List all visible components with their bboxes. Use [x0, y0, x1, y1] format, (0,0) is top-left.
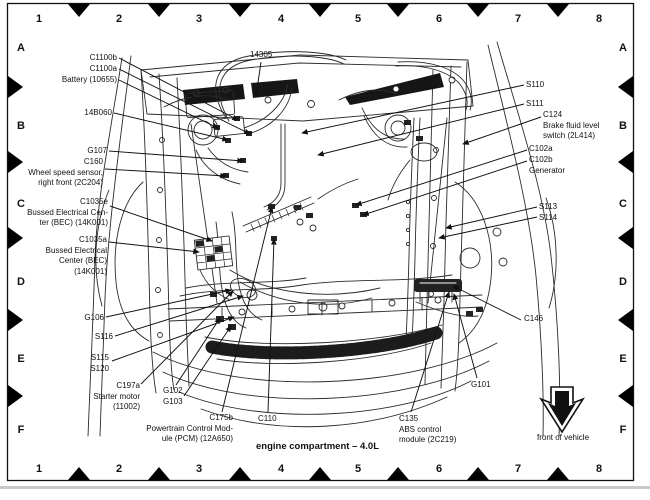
grid-col-8-top: 8	[589, 13, 609, 25]
grid-row-b-left: B	[11, 120, 31, 132]
diagram-title: engine compartment – 4.0L	[256, 441, 379, 452]
callout-text-line: C1100a	[37, 64, 117, 75]
callout-text-line: ule (PCM) (12A650)	[140, 434, 233, 445]
callout-text-line: C1100b	[37, 53, 117, 64]
callout-text-line: (11002)	[58, 402, 140, 413]
callout-s110: S110	[526, 80, 544, 91]
callout-c197a-starter: C197a Starter motor (11002)	[58, 381, 140, 413]
callout-c175b-pcm: C175b Powertrain Control Mod- ule (PCM) …	[140, 413, 233, 445]
callout-c1035e-bec: C1035e Bussed Electrical Cen- ter (BEC) …	[13, 197, 108, 229]
front-of-vehicle-arrow-icon	[541, 387, 583, 432]
callout-text-line: G107	[27, 146, 107, 157]
callout-g102-g103: G102 G103	[163, 386, 183, 407]
callout-c1100b: C1100b	[37, 53, 117, 64]
callout-text-line: C135	[399, 414, 456, 425]
callout-text-line: C102a	[529, 144, 553, 155]
cowl-panel	[141, 55, 473, 121]
callout-text-line: G106	[24, 313, 104, 324]
callout-text-line: S120	[29, 364, 109, 375]
callout-text-line: Generator	[529, 166, 565, 177]
callout-c146: C146	[524, 314, 543, 325]
callout-g106: G106	[24, 313, 104, 324]
callout-text-line: Starter motor	[58, 392, 140, 403]
center-harness	[191, 118, 447, 328]
callout-text-line: C175b	[140, 413, 233, 424]
callout-text-line: right front (2C204)	[8, 178, 103, 189]
callout-battery: Battery (10655)	[37, 75, 117, 86]
engine-compartment-drawing	[88, 42, 560, 436]
service-manual-page: 1 2 3 4 5 6 7 8 1 2 3 4 5 6 7 8 A B C D …	[0, 0, 650, 500]
callout-text-line: Bussed Electrical Cen-	[13, 208, 108, 219]
callout-text-line: C160	[8, 157, 103, 168]
grid-row-d-left: D	[11, 276, 31, 288]
callout-text-line: G103	[163, 397, 183, 408]
front-of-vehicle-label: front of vehicle	[520, 433, 606, 444]
callout-text-line: front of vehicle	[520, 433, 606, 444]
callout-c102b-generator: C102b Generator	[529, 155, 565, 176]
grid-col-6-top: 6	[429, 13, 449, 25]
callout-text-line: C197a	[58, 381, 140, 392]
grid-row-f-left: F	[11, 424, 31, 436]
callout-text-line: Brake fluid level	[543, 121, 599, 132]
callout-text-line: C1035e	[13, 197, 108, 208]
callout-g107: G107	[27, 146, 107, 157]
grid-row-b-right: B	[613, 120, 633, 132]
callout-s111: S111	[526, 99, 544, 110]
callout-g101: G101	[471, 380, 491, 391]
callout-text-line: ter (BEC) (14K001)	[13, 218, 108, 229]
grid-col-7-top: 7	[508, 13, 528, 25]
callout-text-line: module (2C219)	[399, 435, 456, 446]
callout-text-line: C146	[524, 314, 543, 325]
callout-c102a: C102a	[529, 144, 553, 155]
callout-14305: 14305	[250, 50, 272, 61]
callout-text-line: Center (BEC)	[12, 256, 107, 267]
grid-col-8-bottom: 8	[589, 463, 609, 475]
grid-col-5-top: 5	[348, 13, 368, 25]
right-cluster	[362, 108, 437, 342]
callout-c1035a-bec: C1035a Bussed Electrical Center (BEC) (1…	[12, 235, 107, 277]
callout-text-line: S115	[29, 353, 109, 364]
callout-text-line: S110	[526, 80, 544, 91]
grid-row-d-right: D	[613, 276, 633, 288]
callout-text-line: C1035a	[12, 235, 107, 246]
callout-text-line: S114	[539, 213, 557, 224]
grid-row-f-right: F	[613, 424, 633, 436]
callout-text-line: (14K001)	[12, 267, 107, 278]
grid-col-4-top: 4	[271, 13, 291, 25]
grid-row-e-right: E	[613, 353, 633, 365]
page-edge-shadow	[0, 486, 650, 489]
callout-text-line: C110	[258, 414, 277, 425]
grille-bumper	[153, 325, 497, 427]
grid-col-5-bottom: 5	[348, 463, 368, 475]
callout-text-line: S111	[526, 99, 544, 110]
grid-col-1-top: 1	[29, 13, 49, 25]
grid-col-7-bottom: 7	[508, 463, 528, 475]
grid-col-3-bottom: 3	[189, 463, 209, 475]
callout-leader-lines	[105, 58, 541, 412]
callout-c160-wheel-speed-sensor: C160 Wheel speed sensor, right front (2C…	[8, 157, 103, 189]
callout-s116: S116	[33, 332, 113, 343]
callout-c135-abs: C135 ABS control module (2C219)	[399, 414, 456, 446]
grid-col-2-bottom: 2	[109, 463, 129, 475]
grid-row-e-left: E	[11, 353, 31, 365]
grid-col-4-bottom: 4	[271, 463, 291, 475]
callout-text-line: Wheel speed sensor,	[8, 168, 103, 179]
grid-row-a-left: A	[11, 42, 31, 54]
grid-row-c-right: C	[613, 198, 633, 210]
callout-text-line: 14305	[250, 50, 272, 61]
callout-14b060: 14B060	[32, 108, 112, 119]
grid-col-6-bottom: 6	[429, 463, 449, 475]
callout-text-line: ABS control	[399, 425, 456, 436]
grid-col-3-top: 3	[189, 13, 209, 25]
grid-row-a-right: A	[613, 42, 633, 54]
callout-text-line: G101	[471, 380, 491, 391]
callout-c1100a: C1100a	[37, 64, 117, 75]
callout-text-line: S113	[539, 202, 557, 213]
callout-text-line: C102b	[529, 155, 565, 166]
callout-text-line: Battery (10655)	[37, 75, 117, 86]
grid-col-1-bottom: 1	[29, 463, 49, 475]
callout-c124-brake-fluid: C124 Brake fluid level switch (2L414)	[543, 110, 599, 142]
callout-text-line: switch (2L414)	[543, 131, 599, 142]
callout-text-line: C124	[543, 110, 599, 121]
callout-text-line: S116	[33, 332, 113, 343]
grid-col-2-top: 2	[109, 13, 129, 25]
callout-s113-s114: S113 S114	[539, 202, 557, 223]
callout-text-line: 14B060	[32, 108, 112, 119]
callout-text-line: Bussed Electrical	[12, 246, 107, 257]
callout-s115-s120: S115 S120	[29, 353, 109, 374]
callout-text-line: Powertrain Control Mod-	[140, 424, 233, 435]
callout-c110: C110	[258, 414, 277, 425]
callout-text-line: G102	[163, 386, 183, 397]
